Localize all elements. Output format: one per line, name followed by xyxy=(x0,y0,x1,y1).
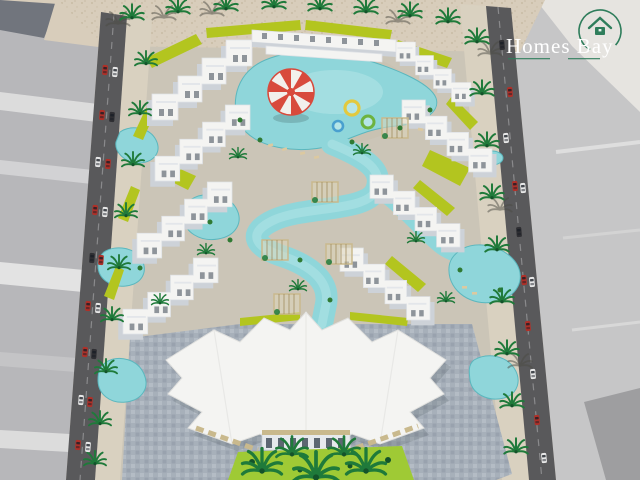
logo-underline xyxy=(508,58,550,59)
logo-text: Homes Bay xyxy=(506,34,614,58)
car xyxy=(78,395,84,405)
car xyxy=(91,349,97,359)
car xyxy=(109,112,115,122)
homes-bay-logo: Homes Bay xyxy=(500,6,636,72)
car xyxy=(75,440,81,450)
car xyxy=(85,301,91,311)
car xyxy=(507,87,513,97)
car xyxy=(521,275,527,285)
pool-float xyxy=(345,101,359,115)
car xyxy=(534,415,540,425)
car xyxy=(541,453,547,463)
car xyxy=(503,133,509,143)
pergola xyxy=(312,182,338,203)
car xyxy=(95,157,101,167)
house-in-circle-icon xyxy=(589,18,611,35)
car xyxy=(520,183,526,193)
logo-underline xyxy=(568,58,600,59)
car xyxy=(529,277,535,287)
car xyxy=(92,205,98,215)
car xyxy=(95,303,101,313)
car xyxy=(512,181,518,191)
car xyxy=(82,347,88,357)
car xyxy=(89,253,95,263)
car xyxy=(530,369,536,379)
pergola xyxy=(382,118,408,139)
car xyxy=(98,255,104,265)
car xyxy=(85,442,91,452)
pergola xyxy=(262,240,288,261)
car xyxy=(525,321,531,331)
car xyxy=(112,67,118,77)
car xyxy=(99,110,105,120)
car xyxy=(102,207,108,217)
pergola xyxy=(326,244,352,265)
logo-graphic: Homes Bay xyxy=(500,6,636,72)
car xyxy=(87,397,93,407)
pergola xyxy=(274,294,300,315)
aerial-render: Homes Bay xyxy=(0,0,640,480)
car xyxy=(102,65,108,75)
pool-float xyxy=(333,121,343,131)
car xyxy=(105,159,111,169)
car xyxy=(516,227,522,237)
pool-float xyxy=(362,116,374,128)
